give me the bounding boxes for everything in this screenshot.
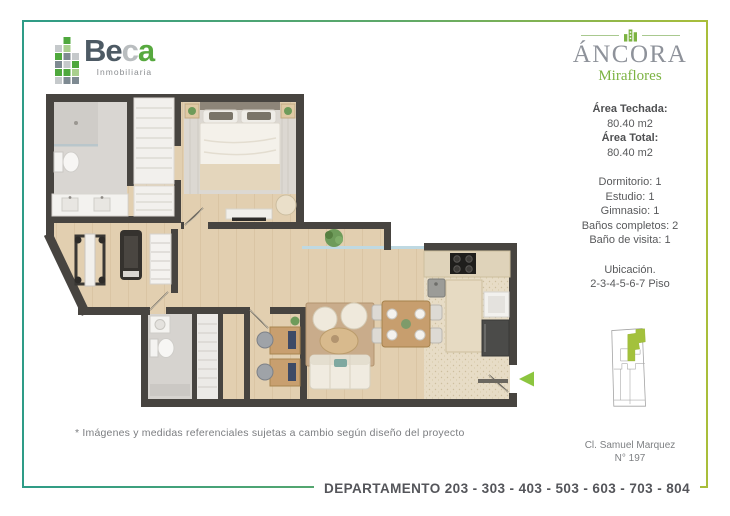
floor-plan-rendering [38,88,546,426]
feature-item: Gimnasio: 1 [552,204,708,219]
disclaimer-text: * Imágenes y medidas referenciales sujet… [75,427,465,439]
area-total-label: Área Total: [602,132,659,144]
specs-panel: Área Techada: 80.40 m2 Área Total: 80.40… [552,102,708,465]
flyer-page: Beca Inmobiliaria ÁNCORA Miraflores Área… [0,0,730,516]
feature-item: Baños completos: 2 [552,219,708,234]
balcony-glass [302,246,424,249]
area-total-value: 80.40 m2 [607,147,653,159]
building-location-diagram [603,304,657,426]
location-floors: 2-3-4-5-6-7 Piso [552,277,708,292]
project-name: ÁNCORA [552,42,708,68]
project-district: Miraflores [552,68,708,84]
floor-plan [38,88,546,426]
location-label: Ubicación. [552,263,708,278]
beca-logo: Beca Inmobiliaria [55,36,154,92]
gym [75,230,172,286]
plant-icon [325,229,343,247]
feature-item: Baño de visita: 1 [552,233,708,248]
closet-floor [197,314,218,401]
feature-item: Dormitorio: 1 [552,175,708,190]
entrance-arrow-icon [519,372,534,387]
apartment-numbers: DEPARTAMENTO 203 - 303 - 403 - 503 - 603… [314,480,700,497]
rule-left [581,35,619,36]
building-icon [624,29,637,42]
area-covered-label: Área Techada: [593,103,668,115]
area-covered-value: 80.40 m2 [607,118,653,130]
beca-wordmark: Be [84,33,122,68]
living-room [306,303,374,389]
address-number: N° 197 [615,453,646,464]
ancora-logo: ÁNCORA Miraflores [552,28,708,84]
rule-right [642,35,680,36]
address-street: Cl. Samuel Marquez [585,440,676,451]
walkin-closet [134,98,174,216]
beca-tagline: Inmobiliaria [84,67,154,77]
beca-blocks-icon [55,36,79,92]
feature-item: Estudio: 1 [552,190,708,205]
